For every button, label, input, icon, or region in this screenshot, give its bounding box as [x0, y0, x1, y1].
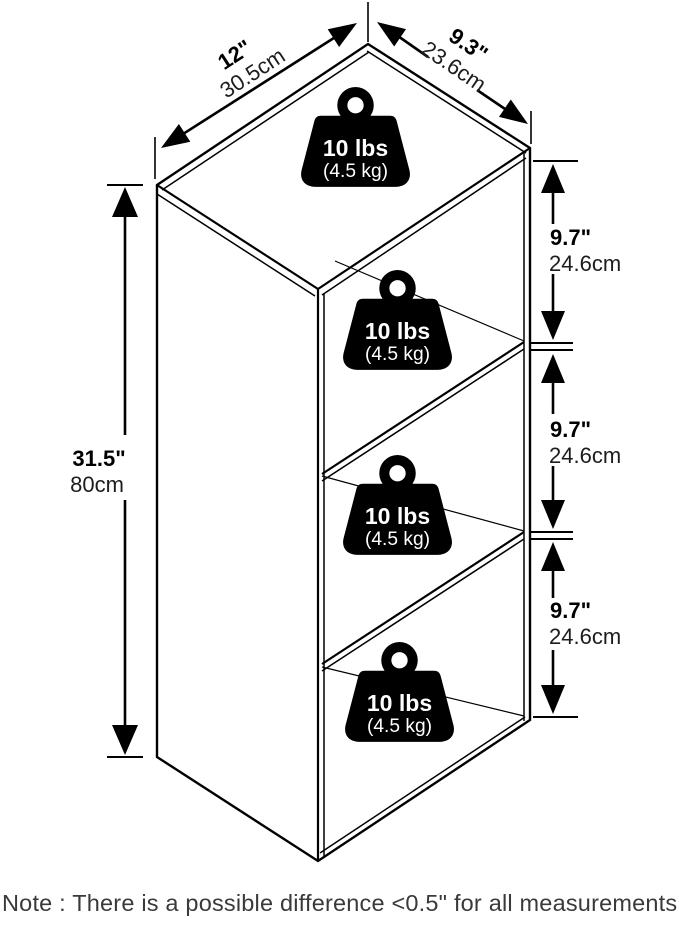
- shelf3-arrowhead-down: [541, 685, 565, 714]
- weight-lbs-label: 10 lbs: [323, 135, 388, 161]
- shelf-divider-2-bottom-edge: [322, 539, 524, 671]
- depth-arrowhead-left: [377, 22, 406, 47]
- weight-capacity-icon-shelf-2: 10 lbs (4.5 kg): [343, 455, 452, 555]
- height-arrowhead-down: [112, 725, 138, 755]
- shelf-height-dimension-1: 9.7" 24.6cm: [530, 161, 621, 350]
- weight-kg-label: (4.5 kg): [365, 529, 430, 550]
- shelf3-arrowhead-up: [541, 542, 565, 571]
- weight-capacity-icon-shelf-1: 10 lbs (4.5 kg): [343, 270, 452, 370]
- weight-handle-hole: [391, 652, 407, 668]
- weight-kg-label: (4.5 kg): [365, 344, 430, 365]
- weight-kg-label: (4.5 kg): [323, 161, 388, 182]
- shelf1-cm-label: 24.6cm: [549, 251, 621, 276]
- shelf2-arrowhead-up: [541, 354, 565, 383]
- height-cm-label: 80cm: [70, 472, 124, 497]
- weight-lbs-label: 10 lbs: [365, 503, 430, 529]
- shelf3-cm-label: 24.6cm: [549, 624, 621, 649]
- shelf2-inches-label: 9.7": [550, 417, 591, 442]
- shelf1-arrowhead-up: [541, 164, 565, 193]
- weight-lbs-label: 10 lbs: [365, 318, 430, 344]
- shelf1-arrowhead-down: [541, 311, 565, 340]
- height-inches-label: 31.5": [72, 446, 125, 471]
- width-arrowhead-right: [328, 23, 357, 47]
- dimension-diagram: 10 lbs (4.5 kg) 10 lbs (4.5 kg) 10 lbs (…: [0, 0, 679, 928]
- weight-capacity-icon-top: 10 lbs (4.5 kg): [301, 87, 410, 187]
- measurement-note: Note : There is a possible difference <0…: [2, 890, 678, 917]
- shelf-height-dimension-3: 9.7" 24.6cm: [533, 542, 621, 717]
- shelf-height-dimension-2: 9.7" 24.6cm: [530, 354, 621, 539]
- height-dimension: 31.5" 80cm: [70, 185, 143, 757]
- shelf1-inches-label: 9.7": [550, 225, 591, 250]
- shelf3-inches-label: 9.7": [550, 598, 591, 623]
- depth-arrowhead-right: [499, 100, 528, 125]
- shelf2-arrowhead-down: [541, 500, 565, 529]
- top-front-left-edge: [157, 185, 318, 289]
- weight-capacity-icon-shelf-3: 10 lbs (4.5 kg): [345, 642, 454, 742]
- weight-handle-hole: [389, 280, 405, 296]
- diagram-canvas: 10 lbs (4.5 kg) 10 lbs (4.5 kg) 10 lbs (…: [0, 0, 679, 928]
- front-left-thickness-line: [157, 194, 315, 296]
- height-arrowhead-up: [112, 187, 138, 217]
- weight-handle-hole: [347, 97, 363, 113]
- depth-dimension-line-lower: [477, 90, 508, 111]
- width-arrowhead-left: [161, 124, 190, 148]
- depth-dimension: 9.3" 23.6cm: [377, 14, 531, 144]
- weight-handle-hole: [389, 465, 405, 481]
- shelf2-cm-label: 24.6cm: [549, 443, 621, 468]
- weight-kg-label: (4.5 kg): [367, 716, 432, 737]
- weight-lbs-label: 10 lbs: [367, 690, 432, 716]
